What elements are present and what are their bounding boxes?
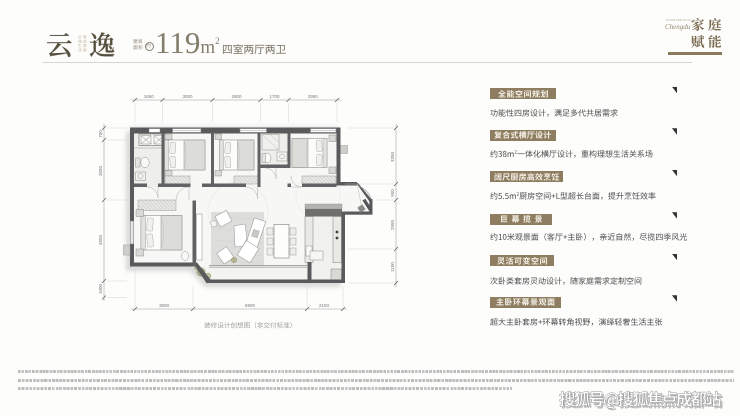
svg-text:4850: 4850 bbox=[98, 234, 103, 245]
svg-text:3350: 3350 bbox=[390, 151, 395, 162]
svg-text:1650: 1650 bbox=[144, 94, 155, 99]
svg-text:3500: 3500 bbox=[159, 303, 170, 308]
svg-text:2150: 2150 bbox=[319, 303, 330, 308]
svg-text:700: 700 bbox=[98, 130, 103, 138]
svg-text:2900: 2900 bbox=[231, 94, 242, 99]
svg-text:1700: 1700 bbox=[269, 94, 280, 99]
svg-text:2950: 2950 bbox=[390, 219, 395, 230]
svg-text:1100: 1100 bbox=[390, 262, 395, 272]
svg-text:3650: 3650 bbox=[98, 165, 103, 176]
svg-text:950: 950 bbox=[390, 189, 395, 197]
svg-text:6900: 6900 bbox=[245, 303, 256, 308]
svg-text:2950: 2950 bbox=[308, 94, 319, 99]
svg-text:3000: 3000 bbox=[182, 94, 193, 99]
svg-text:1000: 1000 bbox=[98, 283, 103, 294]
